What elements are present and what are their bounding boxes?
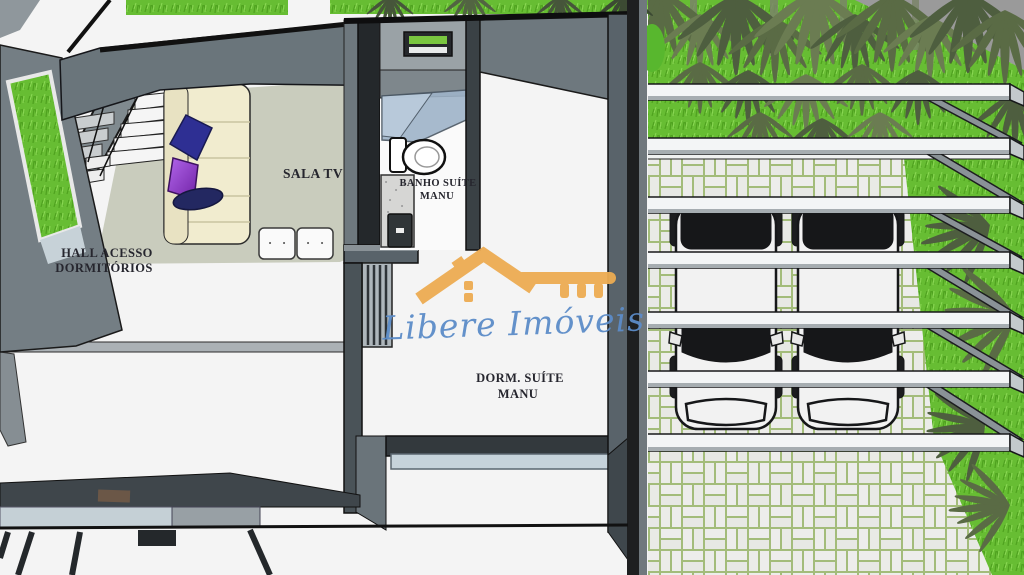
label-sala-tv: SALA TV — [283, 166, 343, 181]
sofa — [164, 84, 250, 244]
render-svg: SALA TV HALL ACESSO DORMITÓRIOS BANHO SU… — [0, 0, 1024, 575]
label-dorm-line2: MANU — [498, 387, 538, 401]
pouf — [297, 228, 333, 259]
floor-plan-render: SALA TV HALL ACESSO DORMITÓRIOS BANHO SU… — [0, 0, 1024, 575]
label-hall-line2: DORMITÓRIOS — [55, 261, 152, 275]
pouf — [259, 228, 295, 259]
window-sill — [386, 436, 614, 456]
bathroom — [380, 16, 466, 250]
outdoor-area — [604, 0, 1024, 575]
partition-wall — [466, 16, 480, 250]
lower-window-glass — [0, 507, 172, 527]
garden-strip — [126, 0, 288, 15]
label-dorm-line1: DORM. SUÍTE — [476, 371, 564, 385]
right-exterior-wall — [608, 0, 647, 575]
toilet — [390, 138, 445, 174]
label-hall-line1: HALL ACESSO — [61, 246, 153, 260]
label-banho-line1: BANHO SUÍTE — [399, 177, 476, 189]
label-banho-line2: MANU — [420, 191, 454, 202]
window-glass-band — [391, 454, 611, 469]
